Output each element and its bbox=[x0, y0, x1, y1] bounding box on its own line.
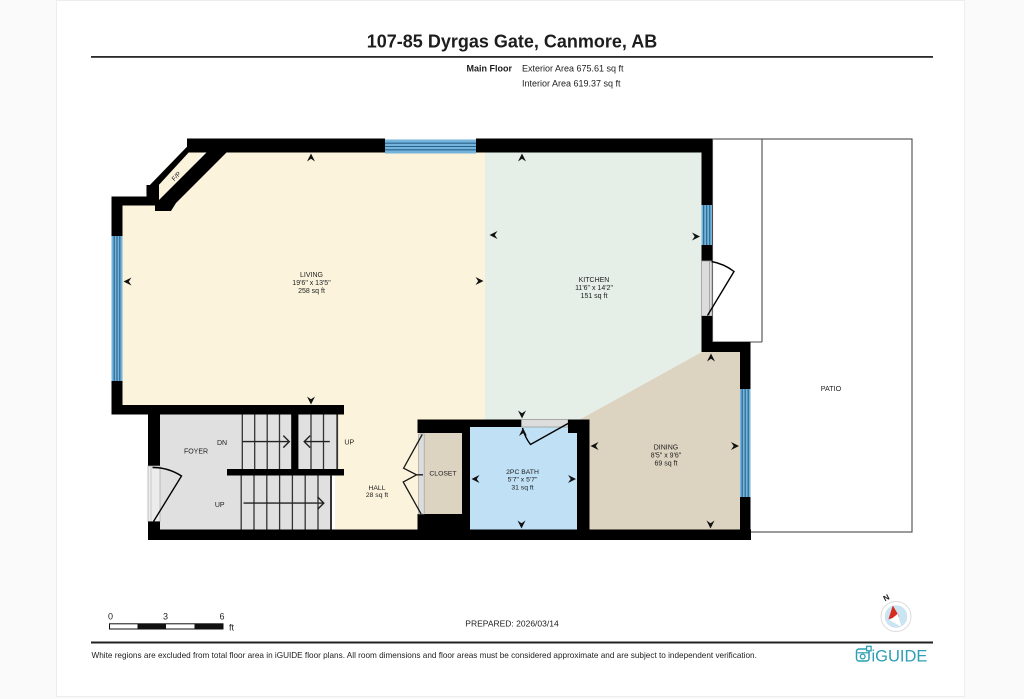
svg-text:151 sq ft: 151 sq ft bbox=[581, 293, 608, 300]
svg-text:28 sq ft: 28 sq ft bbox=[366, 492, 388, 499]
svg-text:11'6" x 14'2": 11'6" x 14'2" bbox=[575, 285, 613, 292]
svg-text:107-85 Dyrgas Gate, Canmore, A: 107-85 Dyrgas Gate, Canmore, AB bbox=[367, 32, 657, 52]
svg-text:FOYER: FOYER bbox=[184, 449, 208, 456]
svg-text:8'5" x 9'6": 8'5" x 9'6" bbox=[651, 453, 682, 460]
svg-text:N: N bbox=[882, 593, 892, 604]
svg-text:LIVING: LIVING bbox=[300, 272, 323, 279]
svg-text:0: 0 bbox=[108, 612, 113, 622]
svg-text:2PC BATH: 2PC BATH bbox=[506, 469, 539, 476]
svg-text:69 sq ft: 69 sq ft bbox=[655, 461, 678, 468]
svg-text:ft: ft bbox=[229, 623, 235, 633]
svg-text:KITCHEN: KITCHEN bbox=[579, 277, 610, 284]
svg-text:PREPARED: 2026/03/14: PREPARED: 2026/03/14 bbox=[465, 619, 559, 629]
svg-text:iGUIDE: iGUIDE bbox=[872, 648, 928, 666]
svg-text:PATIO: PATIO bbox=[821, 384, 842, 393]
svg-text:3: 3 bbox=[163, 612, 168, 622]
svg-text:6: 6 bbox=[219, 612, 224, 622]
svg-text:UP: UP bbox=[215, 502, 225, 509]
svg-text:5'7" x 5'7": 5'7" x 5'7" bbox=[508, 477, 538, 484]
svg-text:White regions are excluded fro: White regions are excluded from total fl… bbox=[92, 651, 757, 660]
svg-text:258 sq ft: 258 sq ft bbox=[298, 288, 325, 295]
svg-text:CLOSET: CLOSET bbox=[429, 471, 456, 478]
svg-text:HALL: HALL bbox=[368, 485, 385, 492]
svg-text:Main Floor: Main Floor bbox=[467, 64, 513, 74]
svg-text:Interior Area 619.37 sq ft: Interior Area 619.37 sq ft bbox=[522, 79, 621, 89]
svg-text:DINING: DINING bbox=[654, 444, 679, 451]
svg-text:UP: UP bbox=[344, 440, 354, 447]
svg-text:19'6" x 13'5": 19'6" x 13'5" bbox=[292, 280, 331, 287]
svg-text:31 sq ft: 31 sq ft bbox=[511, 484, 533, 491]
svg-text:Exterior Area 675.61 sq ft: Exterior Area 675.61 sq ft bbox=[522, 64, 624, 74]
svg-text:DN: DN bbox=[217, 440, 227, 447]
